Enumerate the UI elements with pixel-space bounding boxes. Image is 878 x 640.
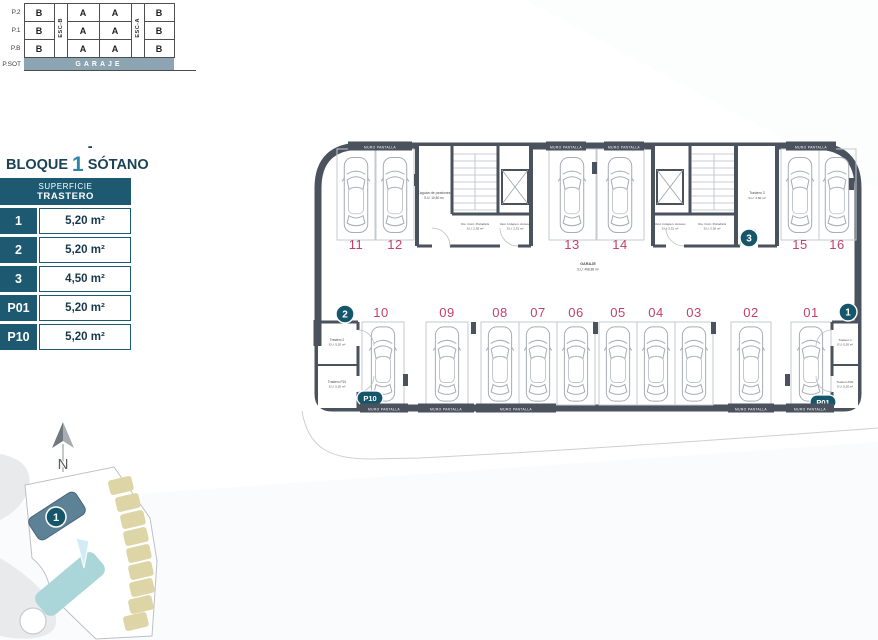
spot-number: 11 bbox=[349, 237, 364, 252]
spot-number: 09 bbox=[439, 305, 454, 320]
room-area: S.U: 5,20 m² bbox=[837, 385, 853, 389]
unit-cell: B bbox=[144, 4, 174, 22]
unit-cell: A bbox=[99, 4, 131, 22]
spot-number: 07 bbox=[530, 305, 545, 320]
trastero-id: 3 bbox=[0, 266, 37, 292]
room-label: Trastero P01 bbox=[836, 380, 854, 384]
spot-number: 08 bbox=[492, 305, 507, 320]
garaje-name: GARAJE bbox=[580, 262, 596, 266]
badge-2: 2 bbox=[336, 305, 354, 323]
trastero-area: 4,50 m² bbox=[39, 266, 131, 292]
room-area: S.U: 5,20 m² bbox=[329, 385, 346, 389]
garage-floor-plan: 11 12 13 14 15 16 Zaguán de peatones S.U… bbox=[300, 118, 878, 490]
legend-row: P01 5,20 m² bbox=[0, 295, 131, 321]
legend-header-line1: SUPERFICIE bbox=[0, 182, 131, 191]
legend-row: P10 5,20 m² bbox=[0, 324, 131, 350]
legend-header-line2: TRASTERO bbox=[0, 191, 131, 202]
room-label: Cto. Cont. Portabicis bbox=[698, 222, 727, 226]
unit-cell: A bbox=[67, 22, 99, 40]
badge-3: 3 bbox=[740, 229, 758, 247]
wall-label: MURO PANTALLA bbox=[364, 146, 396, 150]
wall-label: MURO PANTALLA bbox=[735, 408, 767, 412]
room-label: Zaguán de peatones bbox=[418, 191, 451, 195]
legend-header: SUPERFICIE TRASTERO bbox=[0, 178, 131, 205]
room-area: S.U: 5,20 m² bbox=[329, 343, 346, 347]
site-location-map: 1 N bbox=[0, 418, 240, 640]
room-label: Trastero 1 bbox=[838, 338, 852, 342]
wall-label: MURO PANTALLA bbox=[430, 408, 462, 412]
esc-b-label: ESC-B bbox=[58, 18, 64, 38]
spot-number: 10 bbox=[373, 305, 388, 320]
esc-a-label: ESC-A bbox=[135, 18, 141, 38]
floor-label-p2: P.2 bbox=[2, 4, 24, 22]
trastero-id: P01 bbox=[0, 295, 37, 321]
garaje-area: S.U: 498,86 m² bbox=[577, 268, 598, 272]
block-title-number: 1 bbox=[72, 155, 84, 174]
spot-number: 02 bbox=[743, 305, 758, 320]
north-label: N bbox=[58, 456, 69, 473]
stair-core-a: Vest. Indepen. Acceso S.U: 2,31 m² Cto. … bbox=[651, 146, 779, 247]
north-arrow-dark bbox=[52, 422, 63, 448]
north-arrow-light bbox=[63, 422, 74, 448]
trastero-id: P10 bbox=[0, 324, 37, 350]
spot-number: 06 bbox=[568, 305, 583, 320]
wall-label: MURO PANTALLA bbox=[368, 408, 400, 412]
site-boundary-curve bbox=[302, 411, 878, 459]
legend-row: 1 5,20 m² bbox=[0, 208, 131, 234]
room-area: S.U: 10,80 m² bbox=[424, 196, 444, 200]
north-compass: N bbox=[52, 422, 74, 473]
stair-core-b: Zaguán de peatones S.U: 10,80 m² Cto. Co… bbox=[415, 146, 533, 246]
unit-cell: B bbox=[144, 40, 174, 58]
wall-label: MURO PANTALLA bbox=[795, 146, 827, 150]
wall-label: MURO PANTALLA bbox=[794, 408, 826, 412]
wall-label: MURO PANTALLA bbox=[500, 408, 532, 412]
site-badge-1: 1 bbox=[46, 507, 66, 527]
unit-cell: B bbox=[24, 4, 54, 22]
site-badge-1-label: 1 bbox=[53, 512, 59, 524]
floor-label-p1: P.1 bbox=[2, 22, 24, 40]
unit-cell: A bbox=[67, 4, 99, 22]
trastero-area-legend: BLOQUE 1 - SÓTANO SUPERFICIE TRASTERO 1 … bbox=[0, 138, 131, 350]
legend-row: 3 4,50 m² bbox=[0, 266, 131, 292]
spot-number: 15 bbox=[792, 237, 807, 252]
unit-cell: A bbox=[99, 22, 131, 40]
trastero-area: 5,20 m² bbox=[39, 295, 131, 321]
spot-number: 13 bbox=[564, 237, 579, 252]
spot-number: 05 bbox=[610, 305, 625, 320]
trastero-id: 1 bbox=[0, 208, 37, 234]
block-title: BLOQUE 1 - SÓTANO bbox=[0, 138, 131, 174]
wall-label: MURO PANTALLA bbox=[550, 146, 582, 150]
badge-2-label: 2 bbox=[342, 310, 348, 321]
block-title-suffix: - SÓTANO bbox=[88, 138, 149, 174]
spot-number: 03 bbox=[686, 305, 701, 320]
room-label: Trastero P10 bbox=[328, 380, 347, 384]
unit-cell: B bbox=[24, 22, 54, 40]
badge-3-label: 3 bbox=[746, 234, 752, 245]
garaje-area-label: GARAJE S.U: 498,86 m² bbox=[577, 262, 598, 272]
spot-number: 04 bbox=[648, 305, 663, 320]
stair-column-esc-a: ESC-A bbox=[131, 4, 144, 58]
legend-row: 2 5,20 m² bbox=[0, 237, 131, 263]
room-area: S.U: 2,31 m² bbox=[507, 227, 524, 231]
trastero-id: 2 bbox=[0, 237, 37, 263]
spot-number: 01 bbox=[803, 305, 818, 320]
badge-p10: P10 bbox=[357, 391, 383, 405]
room-label: Vest. Indepen. Acceso bbox=[655, 222, 686, 226]
unit-cell: A bbox=[67, 40, 99, 58]
badge-1: 1 bbox=[839, 303, 857, 321]
unit-cell: A bbox=[99, 40, 131, 58]
room-area: S.U: 2,30 m² bbox=[467, 227, 484, 231]
trastero-area: 5,20 m² bbox=[39, 208, 131, 234]
unit-cell: B bbox=[144, 22, 174, 40]
room-area: S.U: 4,50 m² bbox=[748, 196, 765, 200]
floor-label-pb: P.B bbox=[2, 40, 24, 58]
spot-number: 16 bbox=[829, 237, 844, 252]
spot-number: 12 bbox=[387, 237, 402, 252]
room-area: S.U: 2,31 m² bbox=[662, 227, 679, 231]
trastero-area: 5,20 m² bbox=[39, 324, 131, 350]
room-area: S.U: 5,20 m² bbox=[837, 343, 853, 347]
room-label: Trastero 3 bbox=[749, 191, 764, 195]
stair-column-esc-b: ESC-B bbox=[54, 4, 67, 58]
trastero-area: 5,20 m² bbox=[39, 237, 131, 263]
floorplan-page: P.2 B ESC-B A A ESC-A B P.1 B A A B P.B … bbox=[0, 0, 878, 640]
room-label: Vest. Indepen. Acceso bbox=[500, 222, 531, 226]
badge-1-label: 1 bbox=[845, 308, 851, 319]
garaje-band: GARAJE bbox=[24, 58, 174, 72]
spot-number: 14 bbox=[612, 237, 627, 252]
building-section-schematic: P.2 B ESC-B A A ESC-A B P.1 B A A B P.B … bbox=[2, 3, 175, 71]
block-title-prefix: BLOQUE bbox=[6, 156, 68, 174]
roundabout bbox=[20, 608, 46, 634]
badge-p10-label: P10 bbox=[363, 394, 376, 403]
unit-cell: B bbox=[24, 40, 54, 58]
room-label: Trastero 2 bbox=[330, 338, 345, 342]
wall-label: MURO PANTALLA bbox=[608, 146, 640, 150]
room-area: S.U: 2,30 m² bbox=[704, 227, 721, 231]
room-label: Cto. Cont. Portabicis bbox=[461, 222, 490, 226]
floor-label-psot: P.SOT bbox=[2, 58, 24, 72]
schematic-baseline bbox=[24, 70, 196, 71]
